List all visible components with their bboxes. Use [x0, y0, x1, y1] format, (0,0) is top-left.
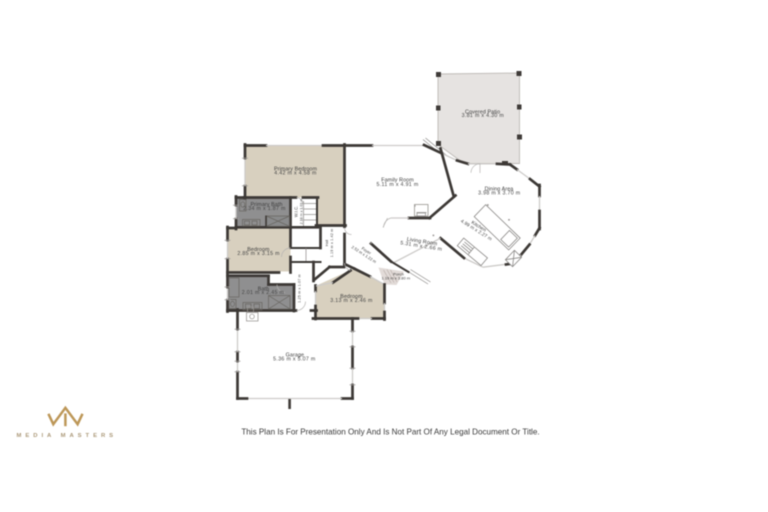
svg-text:4.42 m x 4.58 m: 4.42 m x 4.58 m	[274, 171, 317, 177]
svg-text:Hall: Hall	[293, 285, 297, 292]
svg-text:MEDIA MASTERS: MEDIA MASTERS	[17, 433, 118, 439]
svg-text:5.36 m x 5.07 m: 5.36 m x 5.07 m	[273, 357, 316, 363]
svg-text:1.19 m x 3.80 m: 1.19 m x 3.80 m	[381, 275, 410, 280]
svg-text:5.11 m x 4.91 m: 5.11 m x 4.91 m	[376, 182, 418, 188]
svg-text:1.19 m x 1.42 m: 1.19 m x 1.42 m	[330, 229, 334, 258]
svg-text:2.01 m x 2.45 m: 2.01 m x 2.45 m	[242, 290, 285, 296]
svg-text:2.34 m x 1.87 m: 2.34 m x 1.87 m	[243, 206, 286, 212]
svg-text:This Plan Is For Presentation: This Plan Is For Presentation Only And I…	[241, 427, 539, 436]
svg-text:2.18 m x 1.03 m: 2.18 m x 1.03 m	[299, 199, 303, 225]
svg-text:3.81 m x 4.30 m: 3.81 m x 4.30 m	[462, 113, 505, 119]
svg-text:Hall: Hall	[325, 240, 329, 247]
svg-text:W.I.C.: W.I.C.	[294, 206, 299, 217]
svg-text:3.13 m x 2.46 m: 3.13 m x 2.46 m	[330, 298, 373, 304]
svg-text:2.85 m x 3.15 m: 2.85 m x 3.15 m	[237, 251, 280, 257]
svg-text:3.98 m x 3.70 m: 3.98 m x 3.70 m	[478, 191, 521, 197]
svg-text:1.25 m x 1.07 m: 1.25 m x 1.07 m	[298, 274, 302, 303]
